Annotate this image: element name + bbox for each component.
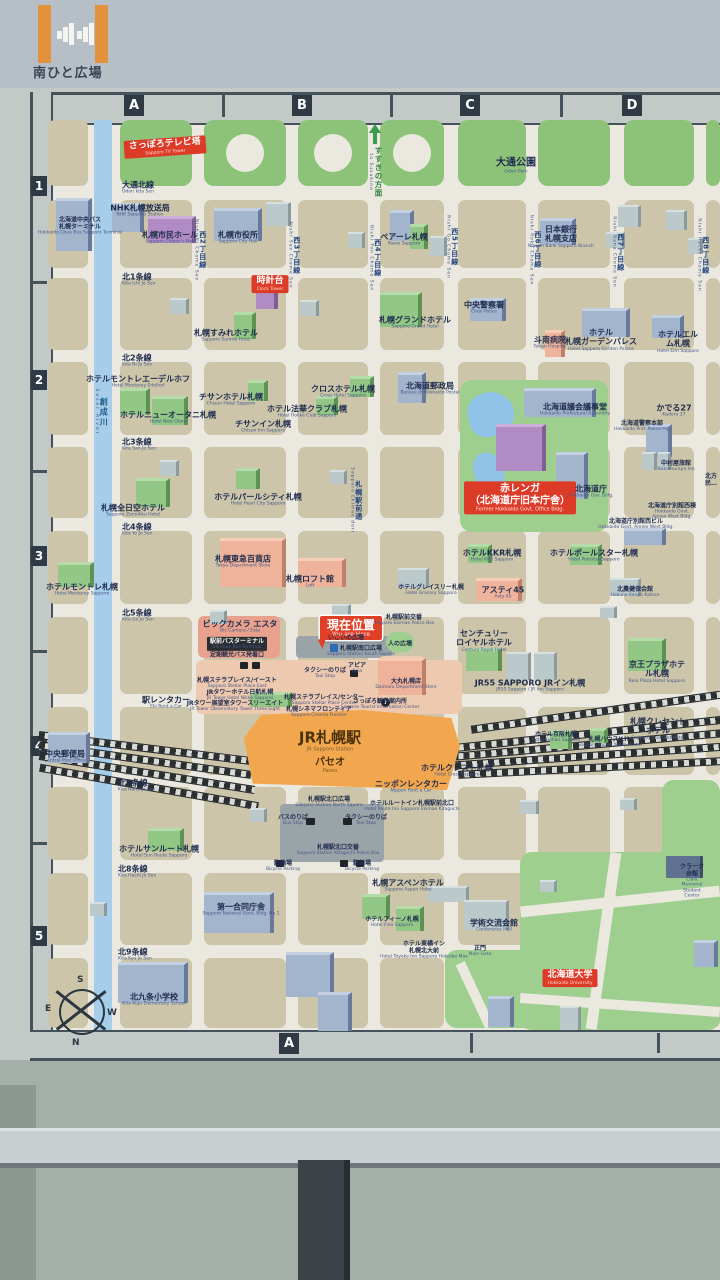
- odori-park-block: [458, 120, 526, 186]
- map-label: 西6丁目線Nishi Roku Chome Sen: [528, 215, 541, 286]
- city-map: ?大通公園Odori Parkさっぽろテレビ塔Sapporo TV Towerす…: [0, 0, 720, 1280]
- grid-row-number: 3: [31, 546, 47, 566]
- map-label: 札幌すみれホテルSapporo Sumire Hotel: [194, 329, 258, 344]
- map-label: 北海道郵政局Bureau of Hokkaido Postal: [400, 382, 459, 397]
- map-label: 北方民…: [705, 473, 717, 487]
- city-block: [120, 278, 192, 350]
- map-label: ホテルエルム札幌Hotel Elm Sapporo: [657, 330, 699, 354]
- building: [624, 528, 666, 545]
- city-block: [120, 873, 192, 945]
- map-label: さっぽろ観光案内所Sapporo Tourist Information Cen…: [341, 698, 420, 710]
- map-label: 北8条線Kita Hachi Jo Sen: [118, 865, 156, 880]
- building: [600, 606, 617, 618]
- city-block: [48, 787, 88, 860]
- map-label: JR55 SAPPORO JRイン札幌JR55 Sapporo / JR Inn…: [475, 679, 585, 694]
- map-label: JRタワー展望室タワースリーエイトJR Tower Observatory To…: [187, 700, 284, 712]
- map-label: 大通北線Odori kita Sen: [122, 181, 154, 196]
- city-block: [298, 873, 368, 945]
- grid-row-number: 5: [31, 926, 47, 946]
- building: [496, 424, 546, 471]
- map-label: ビックカメラ エスタBic Camera / Esta: [203, 620, 278, 635]
- grid-column-letter: A: [124, 95, 144, 116]
- map-label: ホテル 札幌ガーデンパレスHotel Sapporo Garden Palace: [565, 328, 637, 352]
- map-label: ホテルKKR札幌Hotel KKR Sapporo: [463, 549, 522, 564]
- building: [540, 880, 557, 892]
- park-fountain: [226, 134, 264, 172]
- city-block: [48, 447, 88, 518]
- map-label: JR札幌駅JR Sapporo Station: [299, 729, 361, 752]
- map-label: 北7条線Kita Nana Jo Sen: [118, 779, 155, 794]
- map-label: 北4条線Kita Yo Jo Sen: [122, 523, 152, 538]
- building: [160, 460, 179, 476]
- city-block: [458, 200, 526, 268]
- map-label: 北海道議会議事堂Hokkaido Prefectural Assembly: [540, 403, 610, 418]
- map-label: 札幌アスペンホテルSapporo Aspen Hotel: [372, 879, 443, 894]
- city-block: [458, 787, 526, 860]
- city-block: [48, 362, 88, 435]
- map-label: 西8丁目線Nishi Hachi Chome Sen: [696, 218, 709, 291]
- map-label: 北2条線Kita Ni Jo Sen: [122, 354, 152, 369]
- map-label: NHK札幌放送局NHK Sapporo Station: [110, 204, 170, 219]
- grid-column-letter: B: [292, 95, 312, 116]
- city-block: [48, 873, 88, 945]
- map-label: 時計台Clock Tower: [251, 275, 288, 293]
- map-label: 北海道庁Hokkaido Gov. Bldg.: [568, 485, 613, 500]
- city-block: [706, 362, 720, 435]
- map-label: 北九条小学校Kita Kujo Elementary School: [122, 993, 185, 1008]
- map-label: クロスホテル札幌Cross Hotel Sapporo: [311, 385, 375, 400]
- map-label: 定期観光バス発着口: [210, 651, 264, 658]
- grid-row-number: 2: [31, 370, 47, 390]
- map-label: ホテルルートイン札幌駅前北口Hotel Route Inn Sapporo Ek…: [364, 800, 459, 812]
- map-label: 札幌ロフト館Loft: [286, 575, 334, 590]
- building: [318, 992, 352, 1031]
- map-label: 札幌ステラプレイス/イーストSapporo Stellar Place East: [197, 677, 277, 689]
- map-label: 北3条線Kita San Jo Sen: [122, 438, 156, 453]
- map-label: 西3丁目線Nishi San Chome Sen: [287, 221, 300, 288]
- map-label: いこいの広場: [328, 634, 364, 641]
- map-label: 人の広場: [388, 640, 412, 647]
- map-label: 大通公園Odori Park: [496, 158, 536, 175]
- odori-park-block: [706, 120, 720, 186]
- map-label: 北9条線Kita Kyu Jo Sen: [118, 948, 152, 963]
- odori-park-block: [538, 120, 610, 186]
- map-label: チサンイン札幌Chisun Inn Sapporo: [235, 420, 291, 435]
- building: [136, 478, 170, 507]
- map-label: 札幌駅南口広場Sapporo Station South Square: [327, 645, 395, 657]
- map-label: 斗南病院Tonan Hospital: [534, 336, 567, 351]
- city-block: [48, 120, 88, 186]
- grid-column-letter: C: [460, 95, 480, 116]
- map-label: ニッポンレンタカーNippon Rent a Car: [375, 780, 447, 795]
- map-label: ホテルモントレエーデルホフHotel Monterey Edelhof: [86, 375, 190, 390]
- city-block: [120, 617, 192, 694]
- map-label: 駅前バスターミナルEki-mae Bus Terminal: [207, 637, 267, 651]
- map-label: チサンホテル札幌Chisun Hotel Sapporo: [199, 393, 263, 408]
- building: [90, 902, 107, 916]
- map-label: 西7丁目線Nishi Nana Chome Sen: [611, 216, 624, 287]
- map-label: タクシーのりばTaxi Stop: [345, 814, 387, 826]
- grid-row-number: 1: [31, 176, 47, 196]
- map-label: 赤レンガ （北海道庁旧本庁舎）Former Hokkaido Govt. Off…: [464, 481, 576, 514]
- direction-arrow-icon: [369, 118, 381, 144]
- map-label: 北海道大学Hokkaido University: [542, 969, 597, 987]
- map-label: 札幌市役所Sapporo City Hall: [218, 231, 258, 246]
- city-block: [706, 531, 720, 604]
- compass-e: E: [45, 1004, 51, 1014]
- grid-column-letter: D: [622, 95, 642, 116]
- map-label: アスティ45Asty 45: [482, 586, 525, 601]
- city-block: [380, 447, 444, 518]
- city-block: [538, 531, 610, 604]
- building: [642, 452, 657, 470]
- building: [534, 652, 557, 680]
- grid-column-letter: A: [279, 1033, 299, 1054]
- city-block: [48, 278, 88, 350]
- map-label: 札幌クレセントホテルSapporo Crescent Hotel: [627, 717, 689, 741]
- map-label: 北海道中央バス 札幌ターミナルHokkaido Chuo Bus Sapporo…: [38, 216, 122, 235]
- university-campus: [662, 780, 720, 1030]
- map-label: 第一合同庁舎Sapporo National Govt. Bldg. No.1: [203, 903, 280, 918]
- city-block: [538, 787, 610, 860]
- building: [620, 798, 637, 810]
- building: [170, 298, 189, 314]
- map-label: ホテルサンルート札幌Hotel Sun Route Sapporo: [119, 845, 199, 860]
- building: [506, 652, 531, 680]
- map-label: 中村屋旅館Nakamuraya Inn: [657, 460, 694, 472]
- map-label: ホテル京阪札幌Hotel Keihan Sapporo: [532, 731, 581, 743]
- map-label: 西2丁目線Nishi Ni Chome Sen: [193, 219, 206, 281]
- building: [694, 940, 718, 967]
- compass-s: S: [77, 975, 83, 985]
- map-label: ホテルパールシティ札幌Hotel Pearl City Sapporo: [214, 493, 302, 508]
- sosei-river: [94, 120, 112, 1030]
- map-label: 学術交流会館Conference Hall: [470, 919, 518, 934]
- building: [300, 300, 319, 316]
- city-block: [380, 958, 444, 1028]
- map-label: ホテルモントレ札幌Hotel Monterey Sapporo: [46, 583, 118, 598]
- city-block: [120, 531, 192, 604]
- map-label: 駐輪場Bicycle Parking: [266, 860, 300, 872]
- map-label: すすきの方面to Susukino: [368, 147, 382, 198]
- map-label: 北1条線Kita Ichi Jo Sen: [122, 273, 155, 288]
- map-label: 北海道庁別館西ビルHokkaido Govt. Annex West Bldg.: [598, 518, 673, 530]
- map-label: 正門Main Gate: [469, 945, 492, 957]
- map-label: ホテル東横イン 札幌北大前Hotel Toyoko Inn Sapporo Ho…: [380, 940, 468, 959]
- building: [236, 468, 260, 489]
- map-label: かでる27Kaderu 27: [656, 404, 691, 419]
- map-label: ホテルグレイスリー札幌Hotel Gracery Sapporo: [398, 584, 464, 596]
- building: [666, 210, 687, 230]
- map-label: バスのりばBus Stop: [278, 814, 308, 826]
- building: [560, 1006, 581, 1030]
- park-fountain: [393, 134, 431, 172]
- map-label: 札幌駅前交番Sapporo Ekimae Police Box: [374, 614, 435, 626]
- map-label: 札幌グランドホテルSapporo Grand Hotel: [379, 316, 451, 331]
- building: [520, 800, 539, 814]
- map-label: 創成川Sosei River: [94, 388, 109, 435]
- photo-of-map-signboard: { "scene": { "plaza_sign_title": "南ひと広場"…: [0, 0, 720, 1280]
- map-label: アピアApia: [348, 662, 366, 674]
- building: [286, 952, 334, 997]
- map-label: 大丸札幌店Daimaru Department Store: [375, 678, 436, 690]
- compass-n: N: [72, 1038, 80, 1048]
- compass-w: W: [107, 1008, 117, 1018]
- map-label: 札幌駅北口交番Sapporo Station Kitaguchi Police …: [297, 844, 380, 856]
- map-label: 北農健保会館Hokuno Kenpo Kaikan: [611, 586, 660, 598]
- building: [250, 808, 267, 822]
- city-block: [48, 617, 88, 694]
- city-block: [380, 787, 444, 860]
- map-label: 札幌駅北口広場Sapporo Station North Square: [295, 796, 362, 808]
- map-label: 札幌全日空ホテルSapporo Zennikku Hotel: [101, 504, 165, 519]
- facility-icon: [240, 662, 248, 669]
- compass-rose: S E W N: [52, 982, 110, 1040]
- building: [488, 996, 514, 1027]
- map-label: 西5丁目線Nishi Go Chome Sen: [445, 215, 458, 279]
- map-label: センチュリー ロイヤルホテルCentury Royal Hotel: [456, 629, 512, 653]
- map-label: ホテルニューオータニ札幌Hotel New Otani: [120, 411, 216, 426]
- map-label: ホテルポールスター札幌Hotel Polestar Sapporo: [550, 549, 638, 564]
- building: [330, 470, 347, 484]
- map-label: 北海道警察本部Hokkaido Pref. Police Hq.: [614, 420, 670, 432]
- map-label: 札幌市民ホールSapporo Citizen's Hall: [142, 231, 198, 246]
- map-label: ホテルクレスト札幌Hotel Crest Sapporo: [421, 764, 493, 779]
- map-label: ホテル法華クラブ札幌Hotel Hokke Club Sapporo: [267, 405, 347, 420]
- map-label: 札幌東急百貨店Tokyu Department Store: [215, 555, 271, 570]
- map-label: 中央警察署Chuo Police: [464, 301, 504, 316]
- map-label: タクシーのりばTaxi Stop: [304, 667, 346, 679]
- park-fountain: [314, 134, 352, 172]
- city-block: [706, 617, 720, 694]
- map-label: ホテルフィーノ札幌Hotel Fino Sapporo: [365, 916, 419, 928]
- map-label: クラーク会館Clark Memorial Student Center: [678, 864, 706, 899]
- facility-icon: [252, 662, 260, 669]
- map-label: 札幌駅前通Sapporo Ekimae dori: [349, 467, 362, 533]
- odori-park-block: [624, 120, 694, 186]
- map-label: 京王プラザホテル札幌Keio Plaza Hotel Sapporo: [626, 660, 689, 684]
- map-label: 北5条線Kita Go Jo Sen: [122, 609, 154, 624]
- map-label: 駐輪場Bicycle Parking: [345, 860, 379, 872]
- map-label: ペアーレ札幌Paare Sapporo: [380, 233, 428, 248]
- building: [348, 232, 365, 248]
- map-label: パセオPaseo: [315, 757, 345, 775]
- city-block: [204, 958, 286, 1028]
- map-label: 駅レンタカーEki Rent a Car: [142, 696, 190, 711]
- map-label: 中央郵便局Central Post Office: [44, 750, 86, 765]
- map-label: 西4丁目線Nishi Yon Chome Sen: [368, 225, 381, 292]
